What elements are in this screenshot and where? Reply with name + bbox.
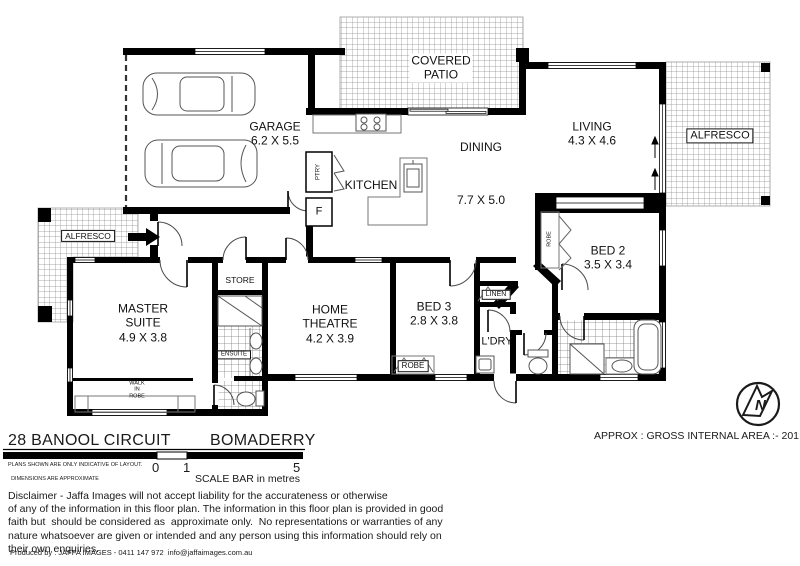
scale-bar-white-segment [157,452,187,459]
room-dims-dining: 7.7 X 5.0 [457,193,505,207]
bath-basin [612,360,632,372]
room-label-covered-patio: COVERED PATIO [409,54,472,83]
ensuite-basin-2 [250,358,262,374]
floor-plan-page: GARAGE 6.2 X 5.5 COVERED PATIO KITCHEN D… [0,0,800,566]
suburb-title: BOMADERRY [210,432,303,450]
room-label-garage: GARAGE 6.2 X 5.5 [249,120,300,149]
cooktop [356,114,386,131]
compass-n-label: N [755,397,766,414]
ensuite-basin-1 [250,333,262,349]
wc-toilet-bowl [529,358,547,374]
laundry-tub [476,356,494,373]
room-label-alfresco-left: ALFRESCO [61,230,115,242]
garage-car-1 [143,73,255,115]
room-label-bed2: BED 2 3.5 X 3.4 [584,244,632,273]
wc-cistern [528,350,548,357]
scale-bar-black-left [3,452,157,459]
produced-by-text: Produced by : JAFFA IMAGES - 0411 147 97… [10,548,252,557]
room-label-laundry: L'DRY [481,335,512,348]
room-label-living: LIVING 4.3 X 4.6 [568,120,616,149]
stacker-door-living [652,104,666,193]
room-label-bed3: BED 3 2.8 X 3.8 [410,300,458,329]
room-label-store: STORE [225,275,254,285]
scale-tick-0: 0 [152,460,159,475]
room-label-robe-bed3: ROBE [398,360,429,372]
room-label-home-theatre: HOME THEATRE 4.2 X 3.9 [302,302,357,345]
footer-rules [3,450,305,460]
room-label-walk-in-robe: WALK IN ROBE [129,381,145,400]
pantry-fold-doors [334,155,344,191]
wc-fixtures [528,350,548,374]
ensuite-toilet-cistern [256,391,264,406]
room-label-master-suite: MASTER SUITE 4.9 X 3.8 [118,301,168,344]
room-label-linen: LINEN [482,290,511,300]
kitchen-bench [313,114,401,133]
ensuite-toilet-bowl [237,392,255,406]
fridge-label: F [316,205,323,218]
address-title: 28 BANOOL CIRCUIT [8,432,171,450]
room-label-robe-bed2: ROBE [547,229,554,249]
scale-bar-black-right [187,452,303,459]
plan-notes: PLANS SHOWN ARE ONLY INDICATIVE OF LAYOU… [8,462,142,483]
pantry-label: PTRY [315,164,322,180]
disclaimer-text: Disclaimer - Jaffa Images will not accep… [8,490,443,556]
scale-bar-caption: SCALE BAR in metres [178,473,300,485]
room-label-alfresco-right: ALFRESCO [686,128,753,143]
garage-car-2 [145,140,257,187]
sliding-door-patio [408,108,488,115]
room-label-ensuite: ENSUITE [217,350,251,359]
gross-area-note: APPROX : GROSS INTERNAL AREA :- 201 SQM [594,430,800,442]
room-label-kitchen: KITCHEN [345,178,398,192]
room-label-dining: DINING [460,140,502,154]
